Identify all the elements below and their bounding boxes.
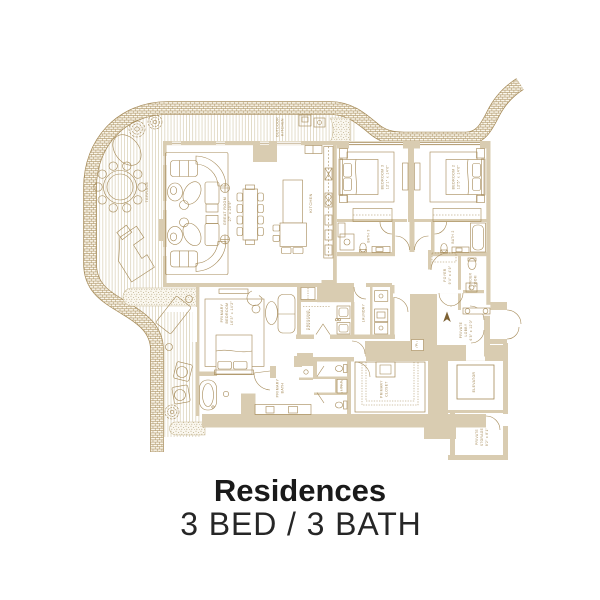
svg-text:3 BED / 3 BATH: 3 BED / 3 BATH [180, 506, 421, 542]
svg-text:BEDROOM 2: BEDROOM 2 [452, 165, 456, 190]
svg-text:LAUNDRY: LAUNDRY [362, 303, 366, 322]
svg-text:BATH 3: BATH 3 [367, 229, 371, 242]
svg-text:LOBBY: LOBBY [464, 323, 468, 336]
svg-text:W: W [414, 343, 418, 346]
svg-text:LINEN: LINEN [339, 381, 343, 391]
svg-text:POWDER: POWDER [469, 272, 473, 289]
svg-text:KITCHEN: KITCHEN [281, 118, 285, 136]
svg-text:12'5" x 14'0": 12'5" x 14'0" [457, 164, 461, 189]
svg-text:9'4" x 4'9": 9'4" x 4'9" [448, 265, 452, 284]
svg-text:DRESSING: DRESSING [306, 310, 310, 330]
svg-text:6'8" x 12'0": 6'8" x 12'0" [469, 319, 473, 340]
svg-text:Residences: Residences [214, 473, 386, 508]
svg-text:FOYER: FOYER [443, 268, 447, 282]
svg-text:GREAT ROOM: GREAT ROOM [223, 197, 227, 225]
svg-text:BATH 2: BATH 2 [451, 230, 455, 243]
svg-text:PRIVATE: PRIVATE [475, 429, 479, 445]
svg-text:CLOSET: CLOSET [385, 381, 389, 397]
svg-text:STORAGE: STORAGE [480, 428, 484, 446]
svg-text:ELEVATOR: ELEVATOR [472, 371, 476, 392]
svg-text:PRIMARY: PRIMARY [380, 380, 384, 398]
svg-text:BATH: BATH [281, 383, 285, 394]
svg-text:BEDROOM 3: BEDROOM 3 [381, 165, 385, 190]
svg-text:KITCHEN: KITCHEN [309, 193, 313, 212]
svg-text:27' x 20'9": 27' x 20'9" [228, 200, 232, 221]
svg-text:OUTDOOR: OUTDOOR [276, 117, 280, 137]
svg-text:PRIVATE: PRIVATE [459, 321, 463, 338]
svg-text:16'3" x 14'2": 16'3" x 14'2" [230, 300, 234, 325]
svg-text:ROOM: ROOM [474, 275, 478, 287]
svg-text:PRIMARY: PRIMARY [220, 303, 224, 322]
svg-text:12'1" x 14'0": 12'1" x 14'0" [386, 164, 390, 189]
svg-text:BEDROOM: BEDROOM [225, 303, 229, 324]
svg-text:PRIMARY: PRIMARY [276, 378, 280, 397]
svg-text:8'2" x 8'1": 8'2" x 8'1" [485, 428, 489, 446]
svg-text:TERRACE: TERRACE [145, 181, 149, 202]
